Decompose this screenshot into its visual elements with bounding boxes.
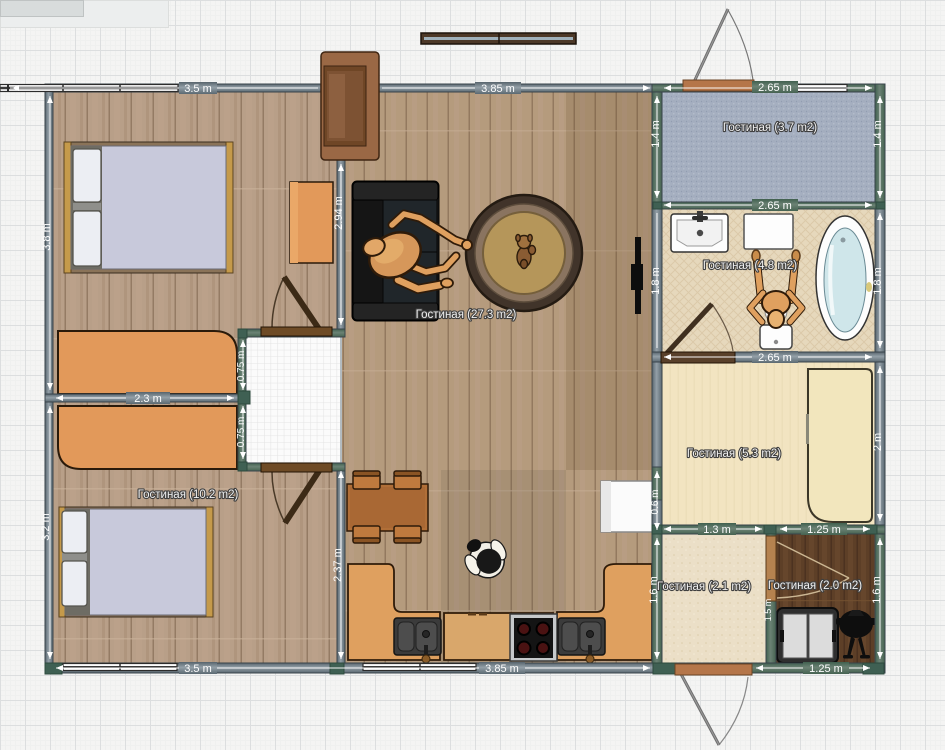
svg-text:Гостиная (3.7 m2): Гостиная (3.7 m2) xyxy=(723,122,817,134)
svg-text:3.85 m: 3.85 m xyxy=(481,83,515,95)
svg-text:0.75 m: 0.75 m xyxy=(236,351,247,382)
svg-text:Гостиная (2.1 m2): Гостиная (2.1 m2) xyxy=(657,581,751,593)
svg-text:2.65 m: 2.65 m xyxy=(758,82,792,94)
svg-text:Гостиная (10.2 m2): Гостиная (10.2 m2) xyxy=(138,489,239,501)
svg-text:3.85 m: 3.85 m xyxy=(485,663,519,675)
svg-text:0.6 m: 0.6 m xyxy=(650,489,661,514)
svg-text:1.3 m: 1.3 m xyxy=(703,524,731,536)
svg-text:1.25 m: 1.25 m xyxy=(809,663,843,675)
svg-text:2.65 m: 2.65 m xyxy=(758,352,792,364)
svg-text:2.94 m: 2.94 m xyxy=(333,196,345,230)
svg-text:2 m: 2 m xyxy=(872,433,884,451)
svg-text:1.5 m: 1.5 m xyxy=(763,599,773,622)
svg-text:0.75 m: 0.75 m xyxy=(236,417,247,448)
svg-text:3.8 m: 3.8 m xyxy=(41,223,53,251)
svg-text:Гостиная (5.3 m2): Гостиная (5.3 m2) xyxy=(687,448,781,460)
svg-text:3.5 m: 3.5 m xyxy=(184,83,212,95)
svg-text:2.3 m: 2.3 m xyxy=(134,393,162,405)
svg-text:Гостиная (27.3 m2): Гостиная (27.3 m2) xyxy=(416,309,517,321)
svg-text:Гостиная (4.8 m2): Гостиная (4.8 m2) xyxy=(703,260,797,272)
svg-text:2.37 m: 2.37 m xyxy=(332,548,344,582)
svg-text:Гостиная (2.0 m2): Гостиная (2.0 m2) xyxy=(768,580,862,592)
svg-text:1.25 m: 1.25 m xyxy=(807,524,841,536)
svg-text:1.8 m: 1.8 m xyxy=(650,267,662,295)
svg-text:3.5 m: 3.5 m xyxy=(184,663,212,675)
svg-text:2.65 m: 2.65 m xyxy=(758,200,792,212)
svg-text:1.4 m: 1.4 m xyxy=(650,120,662,148)
svg-text:3.2 m: 3.2 m xyxy=(40,513,52,541)
svg-text:1.8 m: 1.8 m xyxy=(872,267,884,295)
svg-text:1.4 m: 1.4 m xyxy=(872,120,884,148)
svg-text:1.6 m: 1.6 m xyxy=(871,576,883,604)
